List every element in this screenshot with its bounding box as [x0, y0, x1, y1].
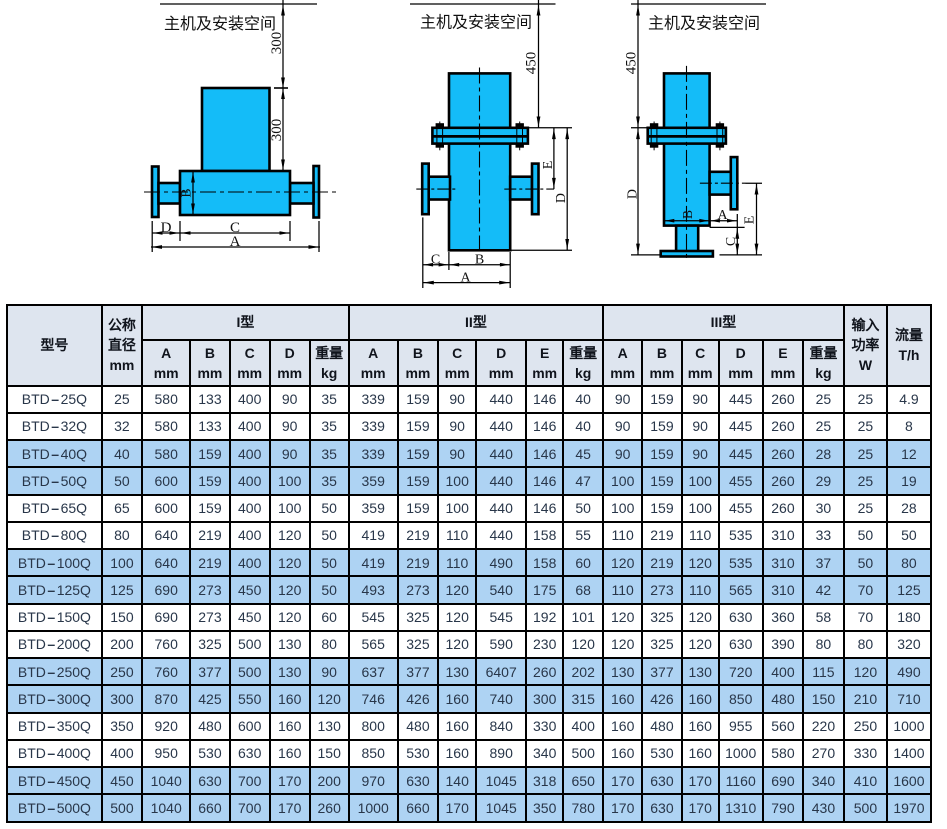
svg-text:A: A [230, 234, 241, 250]
svg-text:B: B [680, 210, 695, 219]
svg-text:450: 450 [524, 52, 540, 75]
svg-text:主机及安装空间: 主机及安装空间 [164, 15, 276, 33]
svg-text:A: A [460, 271, 471, 286]
svg-text:D: D [554, 193, 569, 203]
svg-text:C: C [431, 253, 440, 268]
svg-text:E: E [743, 216, 758, 225]
svg-text:E: E [541, 161, 556, 170]
svg-text:D: D [626, 189, 641, 199]
svg-text:C: C [724, 237, 739, 246]
svg-text:300: 300 [269, 32, 285, 55]
svg-text:主机及安装空间: 主机及安装空间 [420, 14, 532, 32]
svg-text:主机及安装空间: 主机及安装空间 [648, 15, 760, 33]
svg-text:B: B [475, 253, 484, 268]
svg-text:B: B [179, 188, 194, 197]
svg-text:D: D [161, 220, 172, 236]
svg-text:300: 300 [269, 119, 285, 142]
svg-text:450: 450 [624, 52, 640, 75]
svg-text:A: A [717, 208, 728, 223]
